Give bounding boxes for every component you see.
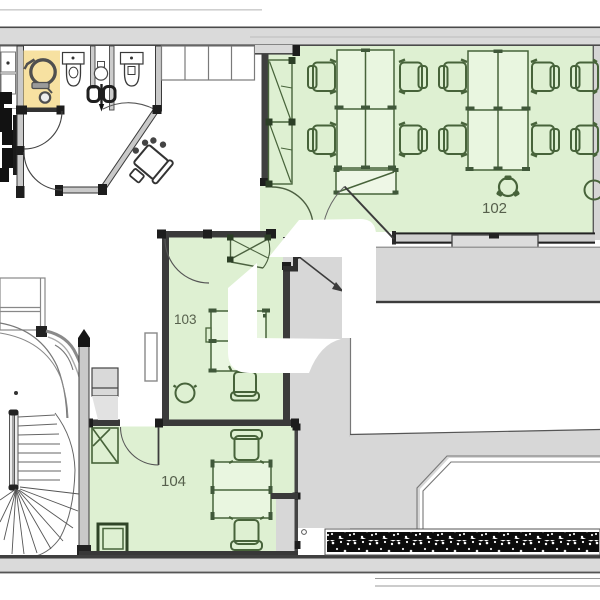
svg-text:102: 102 bbox=[482, 200, 507, 217]
svg-text:104: 104 bbox=[161, 473, 186, 490]
svg-text:103: 103 bbox=[174, 312, 197, 327]
